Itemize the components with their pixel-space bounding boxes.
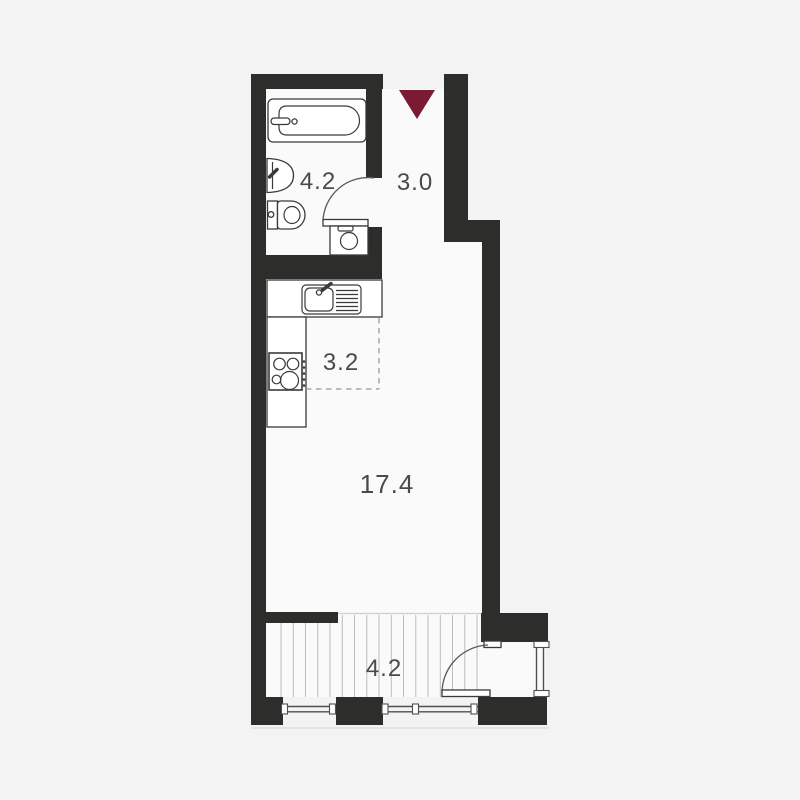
room-label-bathroom: 4.2 xyxy=(300,168,336,195)
toilet-flush-button xyxy=(268,212,274,218)
floor-plan: 4.2 3.0 3.2 17.4 4.2 xyxy=(0,0,800,800)
washing-machine xyxy=(330,226,368,255)
window-mullion xyxy=(534,691,549,697)
room-label-kitchen: 3.2 xyxy=(323,349,359,376)
window-mullion xyxy=(330,704,336,714)
wall-pier-middle xyxy=(336,697,383,725)
toilet-bowl xyxy=(278,201,306,229)
wall-bathroom-bottom xyxy=(251,255,382,279)
wall-pier-right xyxy=(478,697,547,725)
room-label-hallway: 3.0 xyxy=(397,169,433,196)
bathroom-door-leaf xyxy=(323,220,368,227)
wall-left xyxy=(251,74,266,725)
window-mullion xyxy=(282,704,288,714)
window-mullion xyxy=(382,704,388,714)
window-left-glazing xyxy=(283,707,336,712)
wall-balcony-stub xyxy=(266,612,338,623)
wall-bathroom-right-upper xyxy=(366,89,382,178)
wall-entry-right xyxy=(444,74,468,222)
balcony-door-frame xyxy=(484,641,501,648)
window-right-glazing xyxy=(383,707,478,712)
bathtub-drain xyxy=(292,119,297,124)
wall-pier-left xyxy=(251,697,283,725)
wall-step xyxy=(444,220,500,242)
balcony-door-leaf xyxy=(442,690,490,697)
wall-right xyxy=(482,242,500,613)
floor-plan-canvas: 4.2 3.0 3.2 17.4 4.2 xyxy=(0,0,800,800)
room-label-living-room: 17.4 xyxy=(360,469,415,499)
window-mullion xyxy=(534,642,549,648)
bathtub-faucet xyxy=(271,118,290,125)
wall-top xyxy=(251,74,383,89)
room-label-balcony: 4.2 xyxy=(366,655,402,682)
window-mullion xyxy=(471,704,477,714)
wall-balcony-right-bar xyxy=(481,613,548,642)
window-mullion xyxy=(413,704,419,714)
